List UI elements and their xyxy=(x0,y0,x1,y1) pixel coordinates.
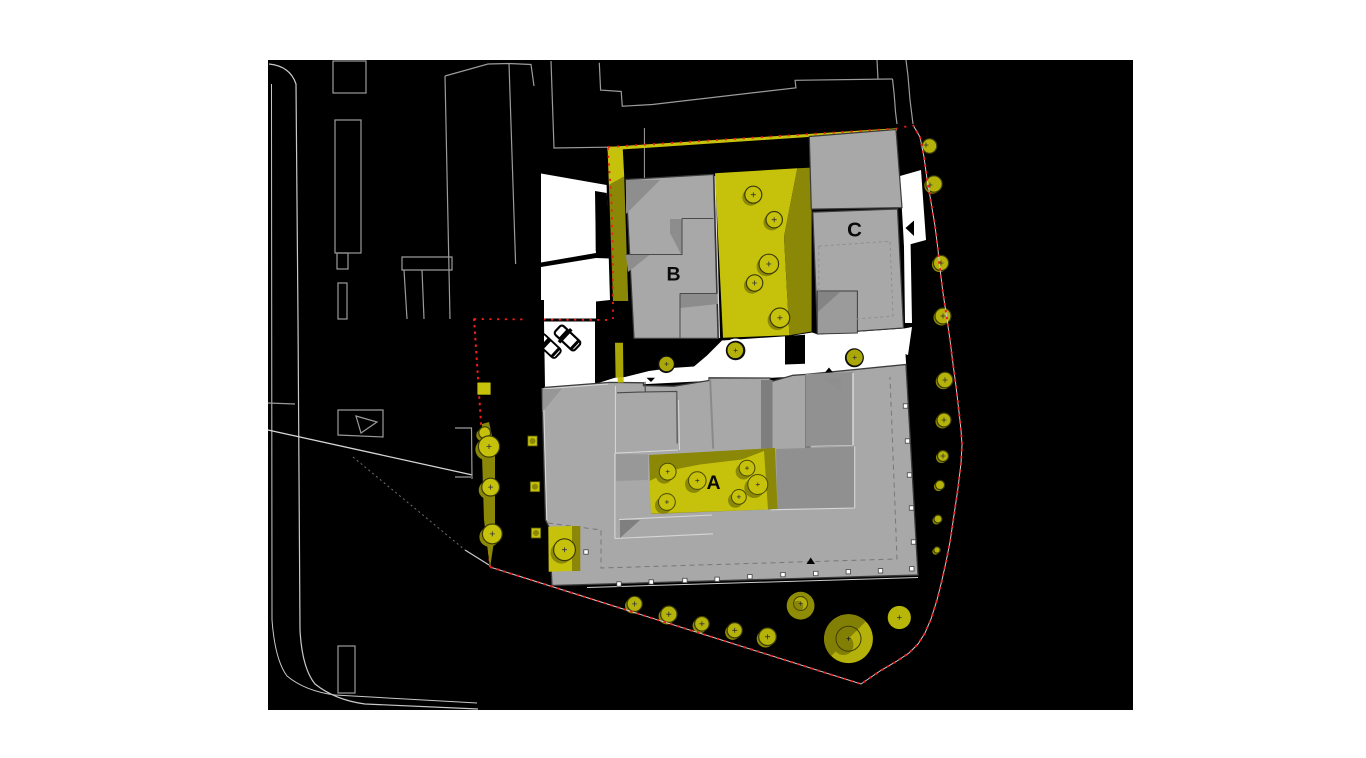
svg-text:A: A xyxy=(706,472,720,494)
svg-text:C: C xyxy=(847,219,862,242)
svg-text:B: B xyxy=(666,264,680,286)
